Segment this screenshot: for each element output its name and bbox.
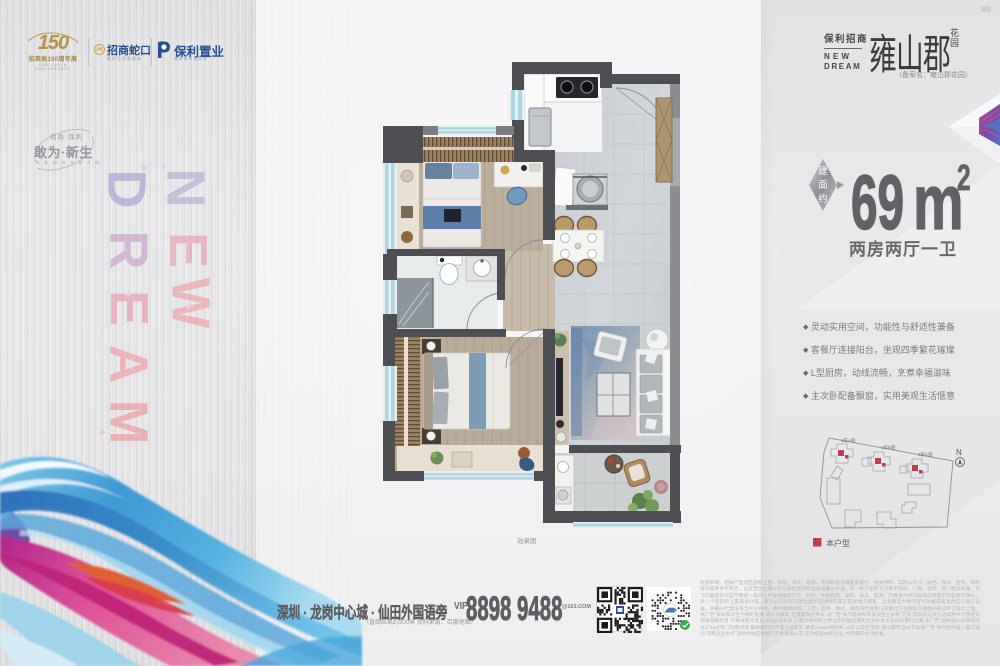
svg-text:效果图: 效果图 bbox=[517, 536, 537, 545]
svg-text:N: N bbox=[956, 448, 962, 457]
svg-text:1栋A座: 1栋A座 bbox=[841, 437, 856, 444]
svg-text:1栋B座: 1栋B座 bbox=[881, 444, 896, 451]
svg-text:约: 约 bbox=[818, 193, 828, 205]
svg-text:面: 面 bbox=[818, 180, 828, 191]
svg-text:本户型: 本户型 bbox=[826, 538, 850, 548]
svg-text:1栋C座: 1栋C座 bbox=[918, 451, 933, 458]
svg-text:建: 建 bbox=[818, 165, 828, 177]
